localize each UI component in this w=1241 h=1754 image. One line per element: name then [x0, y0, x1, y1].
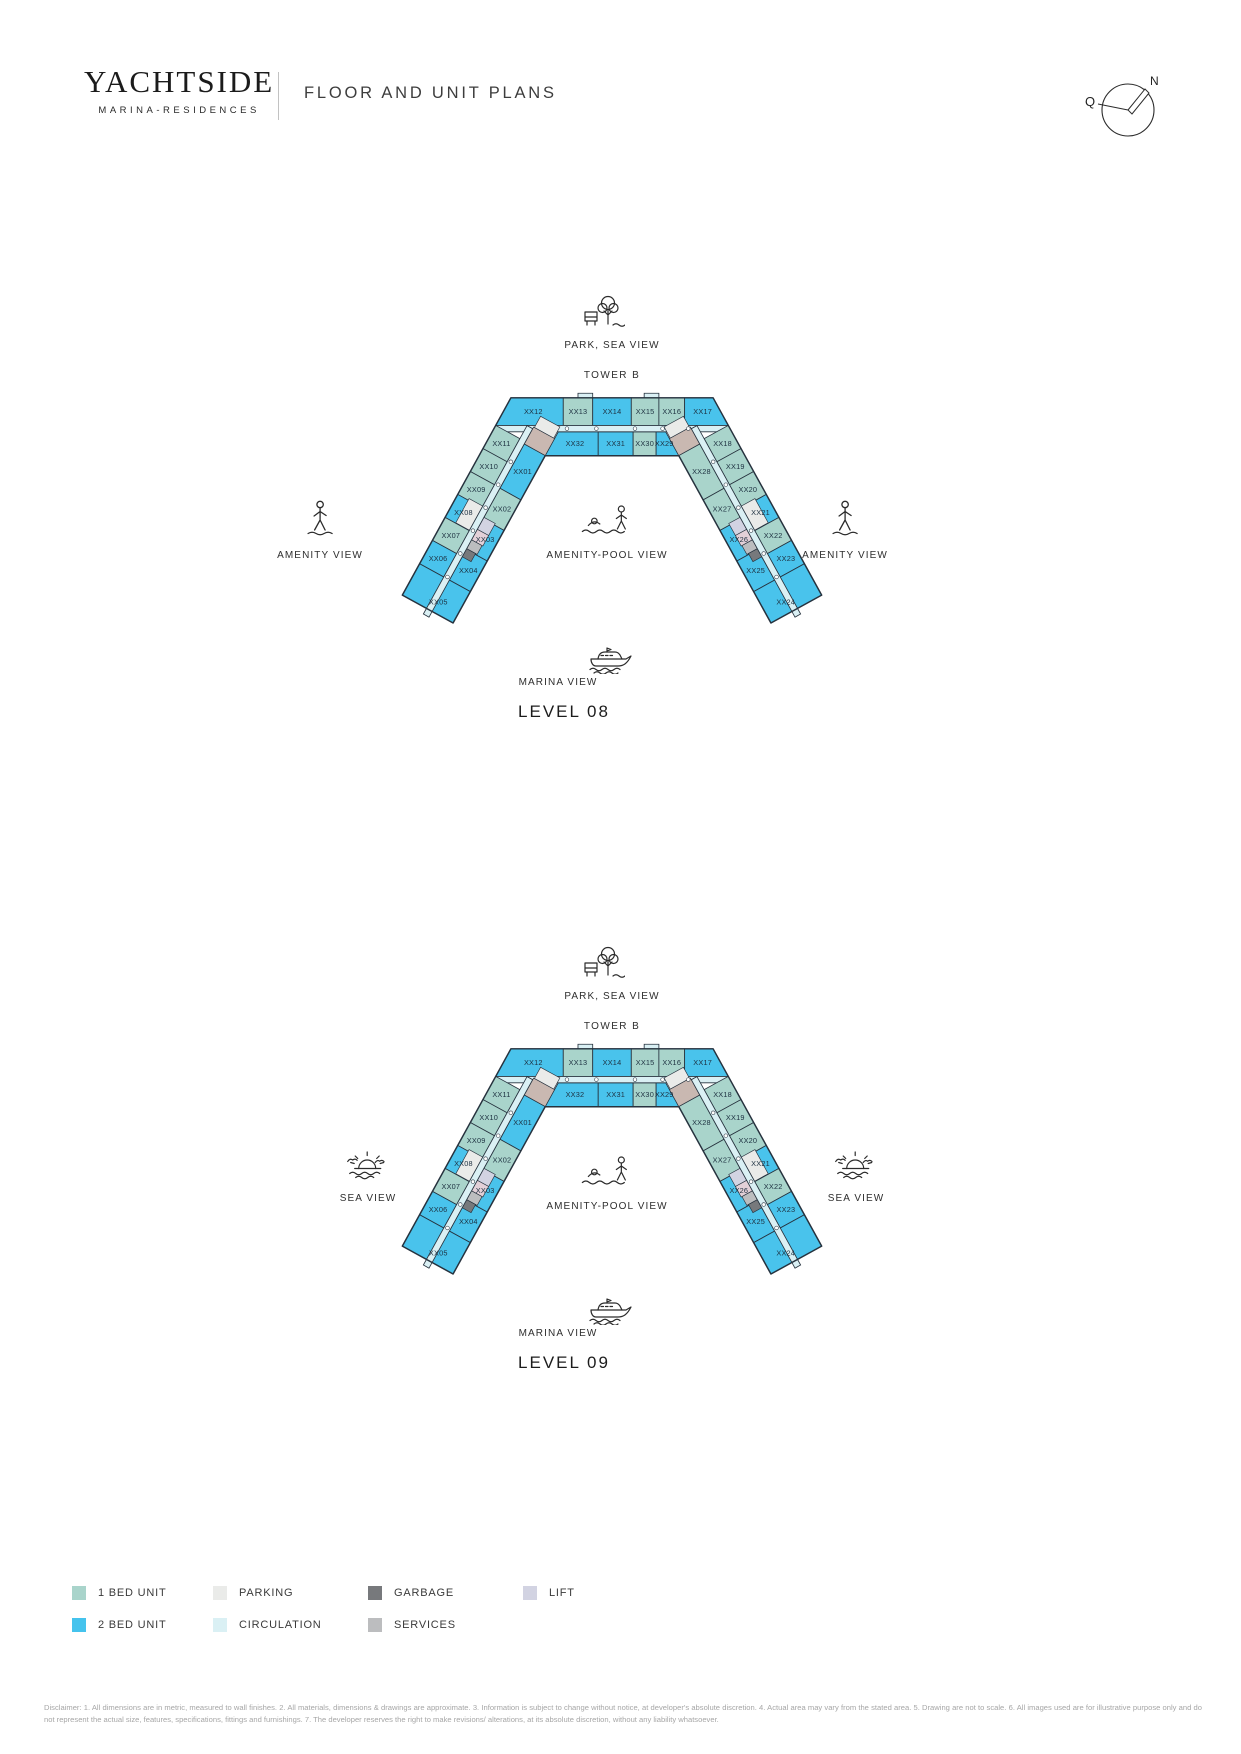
pool-icon	[578, 1153, 636, 1194]
right-view-label: AMENITY VIEW	[802, 550, 888, 561]
unit-label: XX32	[566, 439, 585, 448]
unit-label: XX18	[713, 439, 732, 448]
unit-label: XX04	[459, 566, 478, 575]
door-mark	[471, 1180, 475, 1184]
amenity-person-icon	[828, 498, 862, 543]
unit-label: XX18	[713, 1090, 732, 1099]
unit-label: XX28	[692, 467, 711, 476]
legend-label: 1 BED UNIT	[98, 1587, 167, 1599]
bottom-view-label: MARINA VIEW	[519, 677, 598, 688]
door-mark	[686, 427, 690, 431]
unit-label: XX11	[492, 439, 510, 448]
header-divider	[278, 72, 279, 120]
door-mark	[565, 1078, 569, 1082]
door-mark	[496, 483, 500, 487]
unit-label: XX19	[726, 1113, 745, 1122]
legend-label: GARBAGE	[394, 1587, 454, 1599]
door-mark	[762, 552, 766, 556]
amenity-person-icon	[303, 498, 337, 543]
unit-label: XX28	[692, 1118, 711, 1127]
unit-label: XX20	[739, 1136, 758, 1145]
legend-column: PARKINGCIRCULATION	[213, 1586, 322, 1650]
door-mark	[484, 506, 488, 510]
park-icon	[579, 290, 625, 341]
unit-label: XX29	[655, 1090, 674, 1099]
unit-label: XX23	[777, 1205, 796, 1214]
legend-swatch	[368, 1586, 382, 1600]
unit-label: XX26	[730, 1186, 749, 1195]
brand-logo: YACHTSIDE MARINA-RESIDENCES	[84, 64, 274, 116]
pool-icon	[578, 502, 636, 543]
corridor	[423, 1077, 532, 1269]
door-mark	[661, 427, 665, 431]
door-mark	[762, 1203, 766, 1207]
unit-label: XX24	[776, 598, 795, 607]
door-mark	[633, 427, 637, 431]
unit-label: XX03	[476, 1186, 495, 1195]
legend-label: LIFT	[549, 1587, 575, 1599]
unit-label: XX26	[730, 535, 749, 544]
compass-needle	[1128, 89, 1149, 114]
unit-label: XX24	[776, 1249, 795, 1258]
legend-item: SERVICES	[368, 1618, 456, 1632]
unit-label: XX25	[746, 566, 765, 575]
legend-item: CIRCULATION	[213, 1618, 322, 1632]
unit-label: XX32	[566, 1090, 585, 1099]
unit-label: XX19	[726, 462, 745, 471]
unit-label: XX30	[635, 1090, 654, 1099]
tower-label: TOWER B	[584, 1021, 640, 1032]
unit-label: XX27	[713, 1156, 732, 1165]
left-view-block: SEA VIEW	[340, 1149, 397, 1204]
unit-label: XX13	[569, 407, 588, 416]
sunset-icon	[344, 1149, 392, 1186]
unit-label: XX03	[476, 535, 495, 544]
legend-column: 1 BED UNIT2 BED UNIT	[72, 1586, 167, 1650]
door-mark	[446, 1226, 450, 1230]
unit-label: XX17	[693, 1058, 712, 1067]
legend-label: SERVICES	[394, 1619, 456, 1631]
unit-label: XX23	[777, 554, 796, 563]
tower-label: TOWER B	[584, 370, 640, 381]
door-mark	[711, 460, 715, 464]
door-mark	[633, 1078, 637, 1082]
unit-label: XX31	[606, 1090, 625, 1099]
unit-label: XX13	[569, 1058, 588, 1067]
door-mark	[484, 1157, 488, 1161]
unit-label: XX15	[636, 1058, 655, 1067]
legend-swatch	[213, 1618, 227, 1632]
unit-label: XX01	[513, 467, 532, 476]
unit-label: XX09	[467, 1136, 486, 1145]
left-view-label: SEA VIEW	[340, 1193, 397, 1204]
door-mark	[711, 1111, 715, 1115]
legend-column: GARBAGESERVICES	[368, 1586, 456, 1650]
door-mark	[775, 1226, 779, 1230]
door-mark	[471, 529, 475, 533]
center-view-label: AMENITY-POOL VIEW	[546, 1201, 667, 1212]
yacht-icon	[585, 640, 635, 679]
door-mark	[509, 1111, 513, 1115]
door-mark	[595, 427, 599, 431]
unit-label: XX05	[429, 598, 448, 607]
legend-item: PARKING	[213, 1586, 322, 1600]
door-mark	[686, 1078, 690, 1082]
compass-qibla-label: Q	[1085, 94, 1095, 109]
unit-label: XX31	[606, 439, 625, 448]
legend-swatch	[213, 1586, 227, 1600]
left-view-block: AMENITY VIEW	[277, 498, 363, 561]
unit-label: XX11	[492, 1090, 510, 1099]
unit-label: XX08	[454, 1159, 473, 1168]
corridor	[423, 426, 532, 618]
compass-icon: N Q	[1082, 68, 1182, 153]
door-mark	[496, 1134, 500, 1138]
legend-swatch	[523, 1586, 537, 1600]
corridor	[691, 1077, 800, 1269]
door-mark	[565, 427, 569, 431]
legend-column: LIFT	[523, 1586, 575, 1618]
door-mark	[661, 1078, 665, 1082]
unit-label: XX15	[636, 407, 655, 416]
bottom-view-label: MARINA VIEW	[519, 1328, 598, 1339]
right-view-block: AMENITY VIEW	[802, 498, 888, 561]
unit-label: XX14	[603, 407, 622, 416]
unit-label: XX06	[429, 1205, 448, 1214]
door-mark	[509, 460, 513, 464]
level-label: LEVEL 08	[518, 702, 610, 722]
disclaimer-text: Disclaimer: 1. All dimensions are in met…	[44, 1702, 1202, 1726]
door-mark	[458, 1203, 462, 1207]
door-mark	[749, 529, 753, 533]
legend-item: GARBAGE	[368, 1586, 456, 1600]
unit-label: XX02	[493, 505, 512, 514]
floor-plan-figure-level-08: PARK, SEA VIEW TOWER B XX12XX13XX14XX15X…	[0, 290, 1241, 730]
top-view-label: PARK, SEA VIEW	[564, 340, 659, 351]
legend-label: PARKING	[239, 1587, 293, 1599]
compass-north-label: N	[1150, 74, 1159, 88]
door-mark	[737, 1157, 741, 1161]
unit-label: XX12	[524, 407, 543, 416]
unit-label: XX10	[479, 462, 498, 471]
door-mark	[724, 1134, 728, 1138]
level-label: LEVEL 09	[518, 1353, 610, 1373]
legend-label: 2 BED UNIT	[98, 1619, 167, 1631]
unit-label: XX07	[442, 531, 461, 540]
door-mark	[446, 575, 450, 579]
unit-label: XX02	[493, 1156, 512, 1165]
unit-label: XX16	[662, 1058, 681, 1067]
door-mark	[737, 506, 741, 510]
unit-label: XX14	[603, 1058, 622, 1067]
legend-item: 2 BED UNIT	[72, 1618, 167, 1632]
door-mark	[458, 552, 462, 556]
corridor	[691, 426, 800, 618]
brand-name: YACHTSIDE	[84, 64, 274, 100]
floor-plan-figure-level-09: PARK, SEA VIEW TOWER B XX12XX13XX14XX15X…	[0, 941, 1241, 1381]
unit-label: XX04	[459, 1217, 478, 1226]
unit-label: XX29	[655, 439, 674, 448]
unit-label: XX20	[739, 485, 758, 494]
unit-label: XX25	[746, 1217, 765, 1226]
yacht-icon	[585, 1291, 635, 1330]
page-title: FLOOR AND UNIT PLANS	[304, 84, 557, 103]
legend-swatch	[72, 1586, 86, 1600]
center-view-label: AMENITY-POOL VIEW	[546, 550, 667, 561]
unit-label: XX12	[524, 1058, 543, 1067]
unit-label: XX07	[442, 1182, 461, 1191]
door-mark	[749, 1180, 753, 1184]
legend-item: LIFT	[523, 1586, 575, 1600]
unit-label: XX09	[467, 485, 486, 494]
right-view-label: SEA VIEW	[828, 1193, 885, 1204]
legend: 1 BED UNIT2 BED UNITPARKINGCIRCULATIONGA…	[72, 1586, 772, 1650]
right-view-block: SEA VIEW	[828, 1149, 885, 1204]
top-view-label: PARK, SEA VIEW	[564, 991, 659, 1002]
unit-label: XX22	[764, 1182, 783, 1191]
legend-label: CIRCULATION	[239, 1619, 322, 1631]
unit-label: XX10	[479, 1113, 498, 1122]
center-view-block: AMENITY-POOL VIEW	[546, 1153, 667, 1212]
door-mark	[595, 1078, 599, 1082]
brand-subtitle: MARINA-RESIDENCES	[84, 105, 274, 116]
unit-label: XX16	[662, 407, 681, 416]
center-view-block: AMENITY-POOL VIEW	[546, 502, 667, 561]
park-icon	[579, 941, 625, 992]
unit-label: XX27	[713, 505, 732, 514]
unit-label: XX17	[693, 407, 712, 416]
door-mark	[724, 483, 728, 487]
left-view-label: AMENITY VIEW	[277, 550, 363, 561]
legend-swatch	[368, 1618, 382, 1632]
unit-label: XX21	[751, 508, 770, 517]
unit-label: XX22	[764, 531, 783, 540]
unit-label: XX01	[513, 1118, 532, 1127]
page: YACHTSIDE MARINA-RESIDENCES FLOOR AND UN…	[0, 0, 1241, 1754]
unit-label: XX30	[635, 439, 654, 448]
sunset-icon	[832, 1149, 880, 1186]
unit-label: XX21	[751, 1159, 770, 1168]
unit-label: XX06	[429, 554, 448, 563]
unit-label: XX05	[429, 1249, 448, 1258]
legend-swatch	[72, 1618, 86, 1632]
door-mark	[775, 575, 779, 579]
legend-item: 1 BED UNIT	[72, 1586, 167, 1600]
unit-label: XX08	[454, 508, 473, 517]
